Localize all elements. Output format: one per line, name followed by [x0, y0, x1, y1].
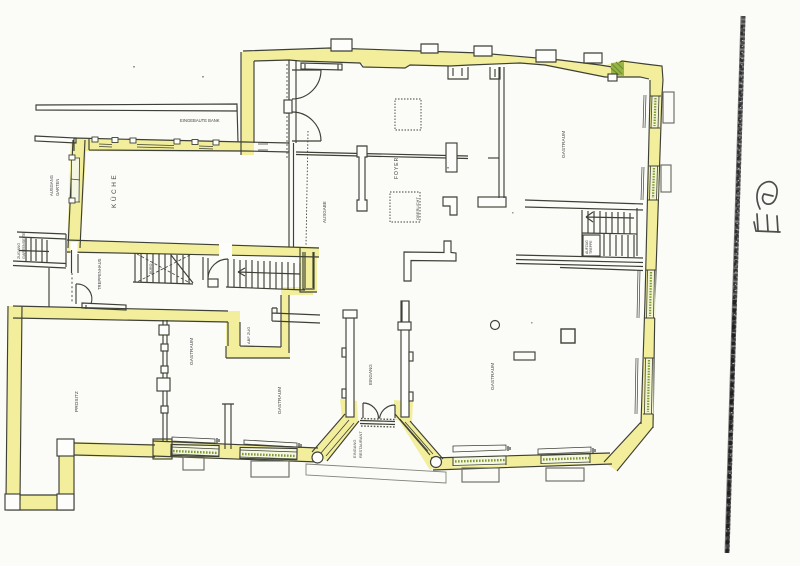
svg-text:AUSGABE: AUSGABE — [322, 201, 327, 223]
svg-text:FOYER: FOYER — [394, 157, 400, 179]
svg-text:EINGANG: EINGANG — [352, 440, 357, 458]
svg-text:EINGEBAUTE BANK: EINGEBAUTE BANK — [180, 118, 220, 123]
svg-text:OBERLICHT: OBERLICHT — [415, 197, 420, 220]
svg-text:RESTAURANT: RESTAURANT — [358, 431, 363, 458]
svg-text:PROSITZ: PROSITZ — [74, 391, 80, 412]
svg-text:GASTRAUM: GASTRAUM — [277, 387, 283, 414]
svg-text:TREPPENHAUS: TREPPENHAUS — [97, 258, 102, 290]
svg-text:EINGANG: EINGANG — [368, 364, 373, 385]
svg-text:GASTRAUM: GASTRAUM — [490, 363, 496, 390]
svg-text:GASTRAUM: GASTRAUM — [189, 338, 195, 365]
svg-text:GARTEN: GARTEN — [55, 179, 60, 196]
svg-text:ZUGANG: ZUGANG — [17, 243, 21, 259]
svg-text:KÜCHE: KÜCHE — [110, 173, 118, 208]
svg-text:GARTENSEITE: GARTENSEITE — [22, 232, 26, 259]
svg-text:GASTRAUM: GASTRAUM — [561, 131, 567, 158]
svg-text:ABF ZUG: ABF ZUG — [246, 327, 251, 344]
svg-text:TREPPE: TREPPE — [589, 240, 593, 254]
svg-text:BÜRO: BÜRO — [149, 263, 153, 274]
svg-text:AUSGANG: AUSGANG — [49, 175, 54, 196]
